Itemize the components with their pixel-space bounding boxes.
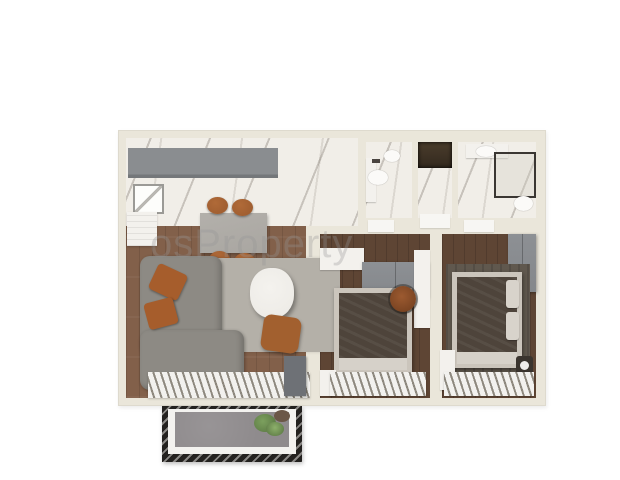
shower-enclosure: [494, 152, 536, 198]
kitchen-upper-cabinets: [128, 148, 278, 178]
kitchen-lower-unit: [127, 212, 157, 246]
sink-basin: [476, 146, 496, 157]
storage-niche: [418, 142, 452, 168]
lamp: [520, 361, 529, 370]
dining-chair: [232, 199, 253, 216]
balcony: [162, 406, 302, 462]
desk-chair: [390, 286, 416, 312]
right-bedroom-window-rug: [444, 372, 534, 396]
faucet: [372, 159, 380, 163]
toilet: [514, 196, 533, 211]
bathroom-a-door-threshold: [368, 220, 394, 232]
tv-console: [284, 356, 306, 396]
desk-console: [320, 248, 364, 270]
bed-sheet: [457, 352, 517, 364]
sink-basin: [384, 150, 400, 162]
bed-pillow: [506, 312, 519, 340]
floor-plan-render: osProperty: [0, 0, 620, 480]
dining-chair: [207, 197, 228, 214]
bed-sheet: [339, 358, 407, 370]
dining-table: [200, 213, 267, 253]
ottoman-pouf: [260, 314, 303, 355]
wall-art-frame: [133, 184, 164, 214]
balcony-plant: [266, 422, 284, 436]
coffee-table: [250, 268, 294, 318]
plant-pot: [274, 410, 290, 422]
right-bedroom-door-threshold: [464, 220, 494, 232]
toilet: [368, 170, 388, 185]
middle-bedroom-window-rug: [330, 372, 426, 396]
closet-door-threshold: [420, 214, 450, 228]
side-desk: [414, 250, 430, 328]
bed-pillow: [506, 280, 519, 308]
